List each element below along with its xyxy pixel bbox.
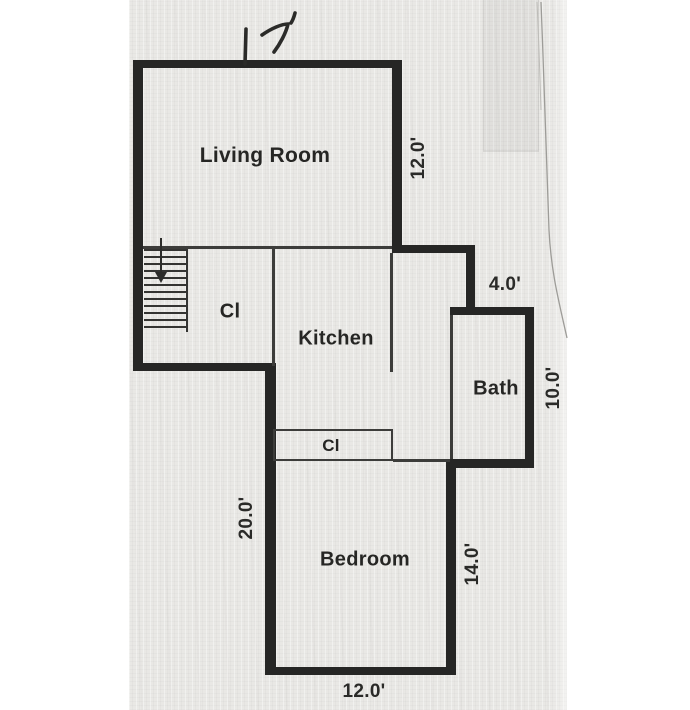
dim-bedroom-bottom: 12.0' [343,681,386,703]
stairs-down-arrowhead-icon [155,272,167,283]
wall-bedroom-left [265,363,276,675]
partition-closet-kitchen [272,246,275,366]
wall-bath-bottom [450,459,534,468]
bath-label: Bath [473,378,519,401]
wall-bath-top [450,307,534,315]
wall-bedroom-right [446,459,456,675]
partition-kitchen-east [390,253,393,372]
dim-bath-right: 10.0' [543,367,565,410]
hall-closet-label: Cl [220,301,241,324]
wall-living-right [392,60,402,253]
partition-closet-bottom-ext [393,459,450,462]
dim-bath-top: 4.0' [489,274,521,296]
bedroom-closet-label: Cl [322,436,340,456]
dim-bedroom-left: 20.0' [236,497,258,540]
paper-crease-lines [0,0,690,710]
partition-bath-left [450,315,453,459]
dim-living-right: 12.0' [408,137,430,180]
dim-bedroom-right: 14.0' [462,543,484,586]
stairs-icon [144,249,188,332]
wall-kitchen-north [392,245,475,253]
wall-southwest [133,363,276,371]
wall-bedroom-bottom [266,667,456,675]
stairs-down-arrow-icon [160,238,162,274]
wall-outer-left [133,60,143,371]
floor-plan-scan: Living Room Kitchen Bath Bedroom Cl Cl 1… [0,0,690,710]
kitchen-label: Kitchen [298,328,373,351]
bedroom-label: Bedroom [320,549,410,572]
wall-bath-right [525,307,534,468]
wall-kitchen-east [466,245,475,315]
living-room-label: Living Room [200,144,330,168]
handwritten-17ft-annotation [230,3,310,73]
